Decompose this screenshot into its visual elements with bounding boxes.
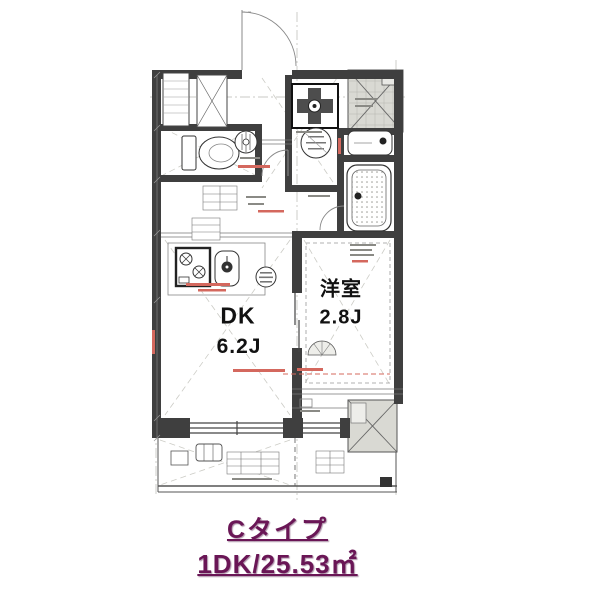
toilet-symbol [182, 131, 257, 170]
room-label-western-room: 洋室 [320, 273, 362, 302]
stove-symbol [176, 248, 210, 286]
service-void-hatch [348, 400, 397, 452]
ventilation-fan-symbol [235, 131, 257, 153]
room-size-western-room: 2.8J [320, 307, 363, 330]
wash-basin-symbol [348, 131, 392, 155]
kitchen-symbols [168, 243, 265, 295]
washing-machine-pan-symbol [292, 84, 338, 128]
kitchen-sink-symbol [215, 251, 239, 286]
room-size-dk: 6.2J [217, 335, 262, 359]
window-symbols [190, 293, 340, 435]
pipe-space-symbol [163, 73, 227, 127]
floorplan-screenshot: DK 6.2J 洋室 2.8J Cタイプ 1DK/25.53㎡ [0, 0, 613, 615]
entrance-door-symbol [242, 10, 296, 70]
legend-table [227, 451, 344, 474]
half-round-symbol [308, 341, 336, 355]
bathtub-symbol [347, 165, 391, 231]
room-label-dk: DK [220, 303, 255, 330]
unit-type-caption: Cタイプ [152, 510, 403, 546]
floor-hatch-symbol [256, 267, 276, 287]
layout-area-caption: 1DK/25.53㎡ [152, 544, 403, 581]
air-conditioner-unit-symbol [171, 444, 222, 465]
annotation-tables [192, 186, 237, 240]
